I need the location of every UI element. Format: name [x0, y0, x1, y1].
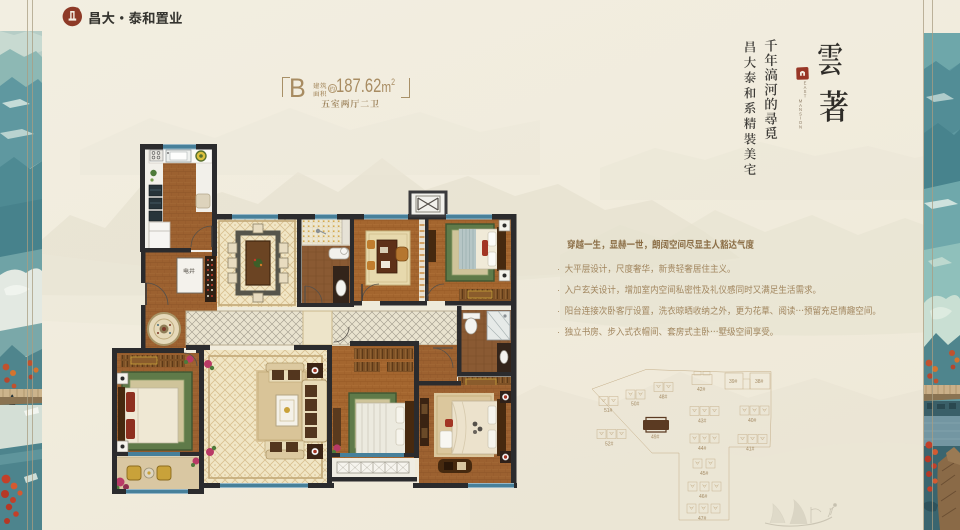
svg-text:电井: 电井: [183, 266, 195, 275]
svg-text:48#: 48#: [659, 395, 668, 401]
svg-text:38#: 38#: [755, 379, 764, 385]
svg-text:51#: 51#: [604, 408, 613, 414]
svg-text:43#: 43#: [698, 419, 707, 425]
svg-text:45#: 45#: [700, 471, 709, 477]
svg-text:46#: 46#: [699, 494, 708, 500]
svg-text:44#: 44#: [698, 446, 707, 452]
svg-text:52#: 52#: [605, 442, 614, 448]
svg-text:50#: 50#: [631, 402, 640, 408]
svg-text:42#: 42#: [697, 387, 706, 393]
svg-text:49#: 49#: [651, 435, 660, 441]
svg-text:39#: 39#: [729, 379, 738, 385]
svg-text:T: T: [804, 93, 807, 98]
svg-text:41#: 41#: [746, 447, 755, 453]
svg-text:47#: 47#: [698, 516, 707, 522]
svg-text:N: N: [799, 124, 802, 129]
svg-text:40#: 40#: [748, 418, 757, 424]
